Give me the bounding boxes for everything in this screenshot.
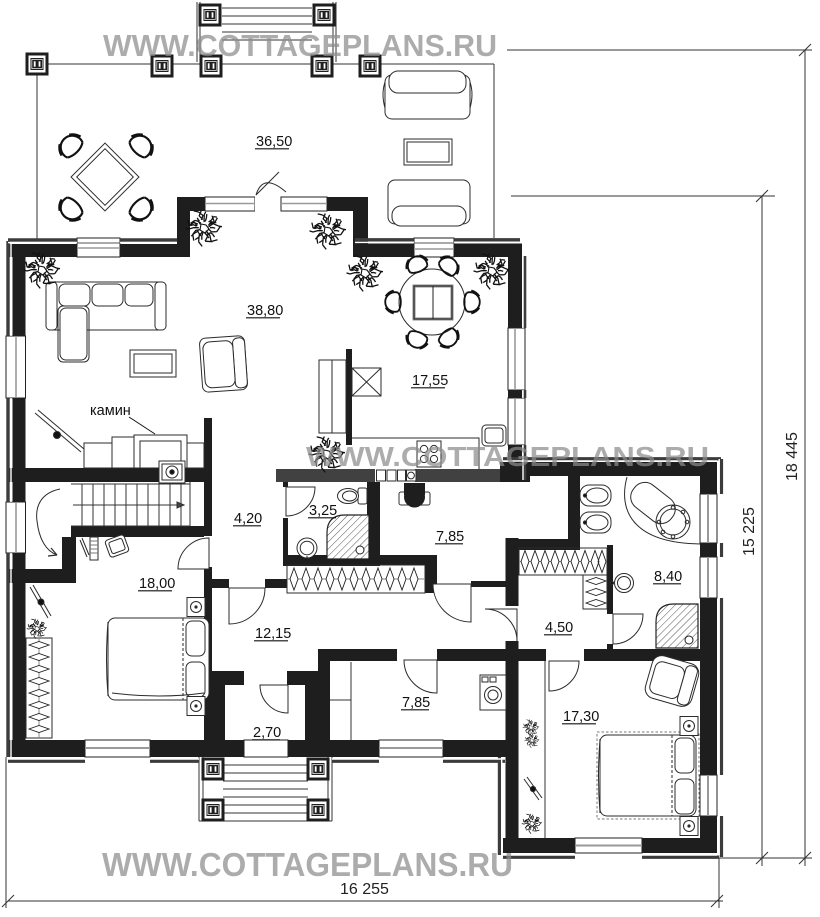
svg-text:17,30: 17,30 [563,709,599,725]
svg-text:WWW.COTTAGEPLANS.RU: WWW.COTTAGEPLANS.RU [306,441,709,472]
svg-text:15 225: 15 225 [741,507,758,556]
svg-text:17,55: 17,55 [412,373,448,389]
svg-text:8,40: 8,40 [654,569,682,585]
svg-text:4,50: 4,50 [545,620,573,636]
svg-text:камин: камин [90,403,131,419]
svg-text:18 445: 18 445 [784,432,801,481]
svg-text:WWW.COTTAGEPLANS.RU: WWW.COTTAGEPLANS.RU [103,28,497,63]
svg-text:18,00: 18,00 [139,576,175,592]
svg-text:7,85: 7,85 [402,695,430,711]
svg-text:16 255: 16 255 [340,881,389,898]
svg-text:36,50: 36,50 [256,134,292,150]
svg-text:2,70: 2,70 [253,725,281,741]
svg-text:3,25: 3,25 [309,503,337,519]
svg-text:38,80: 38,80 [247,303,283,319]
svg-text:12,15: 12,15 [255,626,291,642]
svg-text:WWW.COTTAGEPLANS.RU: WWW.COTTAGEPLANS.RU [102,846,513,883]
svg-text:4,20: 4,20 [234,511,262,527]
svg-text:7,85: 7,85 [436,529,464,545]
